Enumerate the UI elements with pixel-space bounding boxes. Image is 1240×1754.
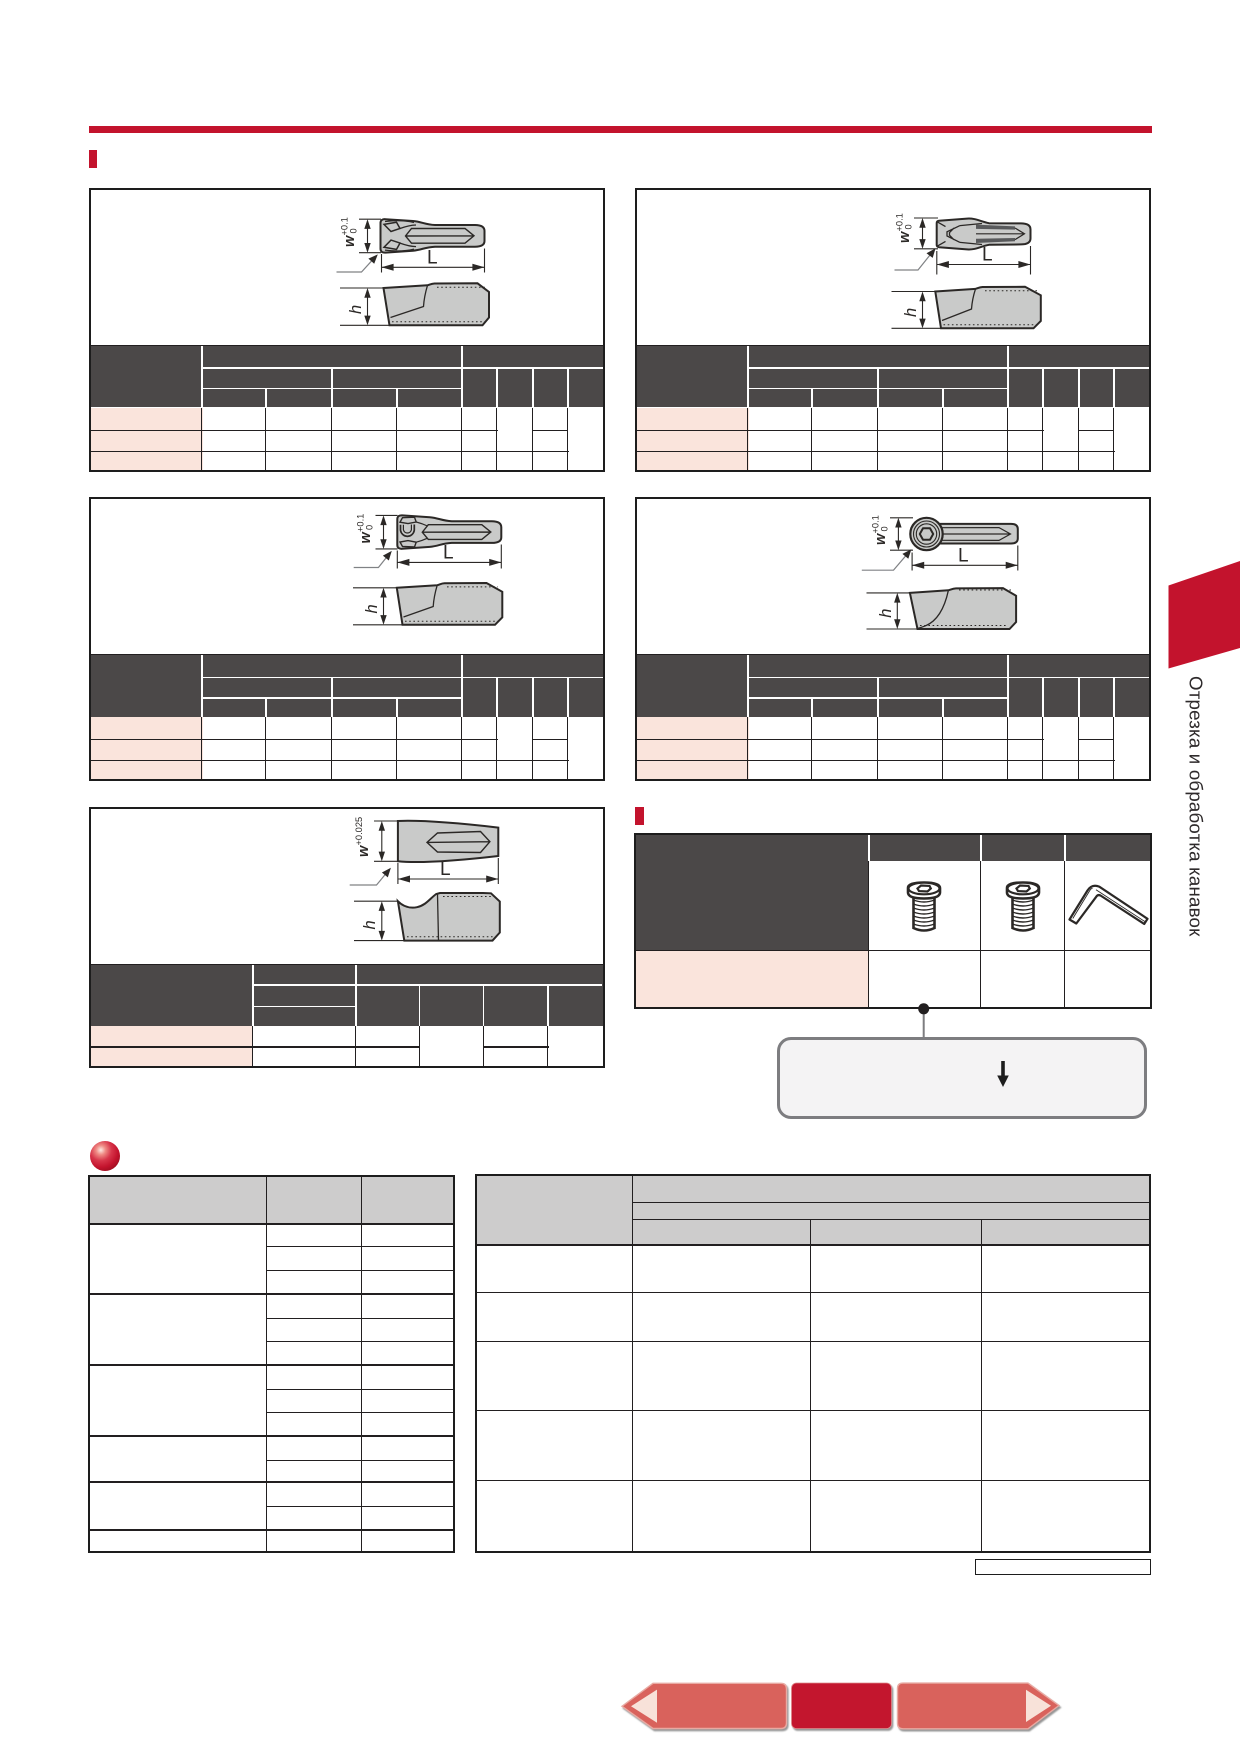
svg-text:0: 0 bbox=[348, 228, 358, 233]
svg-text:0: 0 bbox=[879, 526, 889, 531]
svg-text:h: h bbox=[361, 920, 379, 929]
svg-text:0: 0 bbox=[903, 224, 913, 229]
svg-text:h: h bbox=[347, 304, 365, 313]
svg-text:L: L bbox=[443, 543, 454, 564]
svg-text:0: 0 bbox=[364, 525, 374, 530]
svg-text:+0.025: +0.025 bbox=[354, 817, 364, 846]
svg-text:h: h bbox=[877, 609, 895, 618]
svg-text:L: L bbox=[982, 244, 993, 265]
svg-text:h: h bbox=[902, 307, 920, 316]
svg-text:L: L bbox=[427, 247, 438, 268]
svg-text:h: h bbox=[363, 604, 381, 613]
svg-text:L: L bbox=[440, 859, 451, 880]
svg-text:L: L bbox=[958, 546, 969, 567]
